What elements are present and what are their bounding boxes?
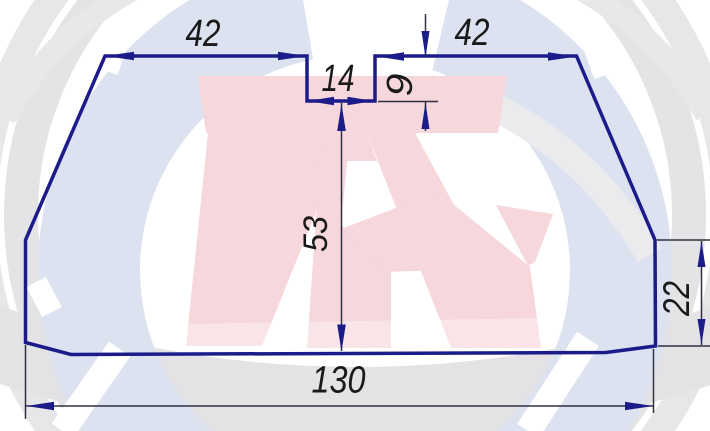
svg-text:42: 42	[455, 12, 490, 54]
svg-text:42: 42	[186, 13, 221, 55]
svg-text:9: 9	[379, 74, 420, 97]
svg-text:22: 22	[656, 281, 697, 317]
svg-text:14: 14	[322, 58, 355, 100]
svg-text:130: 130	[312, 360, 366, 402]
svg-text:53: 53	[297, 216, 335, 252]
